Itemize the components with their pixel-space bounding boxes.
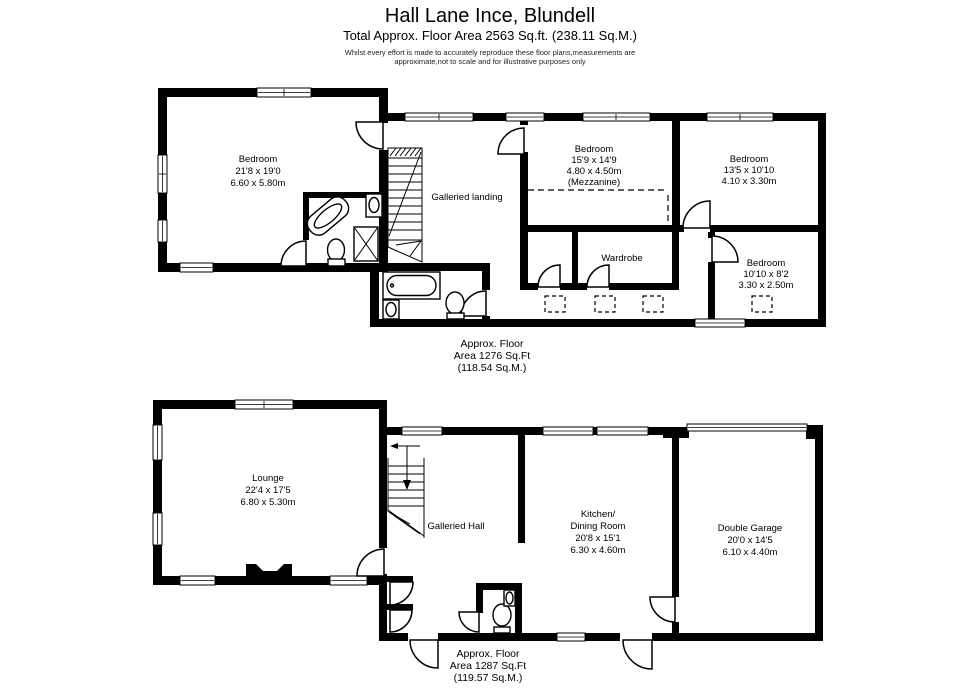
sink bbox=[366, 194, 382, 217]
disclaimer-line-2: approximate,not to scale and for illustr… bbox=[394, 57, 586, 66]
sink bbox=[504, 590, 515, 606]
door-arc bbox=[357, 549, 384, 576]
shower-cubicle bbox=[354, 227, 378, 261]
room-dims-metric: 4.10 x 3.30m bbox=[722, 176, 777, 187]
room-dims-metric: 6.60 x 5.80m bbox=[231, 178, 286, 189]
window bbox=[153, 513, 162, 545]
mezzanine-dashed-line bbox=[528, 190, 668, 224]
window bbox=[257, 88, 311, 97]
room-dims-imperial: 13'5 x 10'10 bbox=[724, 165, 775, 176]
first-floor-plan: Bedroom 21'8 x 19'0 6.60 x 5.80m Galleri… bbox=[158, 88, 826, 374]
skylight bbox=[545, 296, 565, 312]
family-bathroom bbox=[383, 272, 464, 319]
room-label-galleried-hall: Galleried Hall bbox=[427, 521, 484, 532]
room-dims-imperial: 20'0 x 14'5 bbox=[727, 535, 772, 546]
door-arc bbox=[712, 236, 738, 262]
bathtub bbox=[383, 272, 440, 299]
window bbox=[695, 319, 745, 327]
fireplace bbox=[246, 564, 292, 581]
door-arc bbox=[390, 582, 413, 605]
ensuite-bathroom bbox=[303, 193, 382, 266]
toilet bbox=[493, 604, 511, 633]
wc-cloakroom bbox=[493, 590, 515, 633]
ground-floor-plan: Lounge 22'4 x 17'5 6.80 x 5.30m Gallerie… bbox=[153, 400, 823, 684]
window bbox=[180, 263, 213, 272]
window bbox=[330, 576, 367, 585]
door-arc bbox=[459, 612, 479, 632]
ground-floor-walls bbox=[153, 400, 823, 641]
room-label-mezzanine-bedroom: Bedroom bbox=[575, 144, 614, 155]
staircase-ground-floor bbox=[388, 443, 424, 538]
header: Hall Lane Ince, Blundell Total Approx. F… bbox=[343, 5, 637, 66]
disclaimer-line-1: Whilst every effort is made to accuratel… bbox=[345, 48, 635, 57]
page-title: Hall Lane Ince, Blundell bbox=[385, 5, 595, 27]
skylights bbox=[545, 296, 772, 312]
door-arc bbox=[390, 610, 412, 632]
skylight bbox=[752, 296, 772, 312]
window bbox=[405, 113, 473, 121]
room-dims-metric: 3.30 x 2.50m bbox=[739, 280, 794, 291]
window bbox=[180, 576, 215, 585]
first-floor-area-line3: (118.54 Sq.M.) bbox=[458, 362, 527, 374]
skylight bbox=[643, 296, 663, 312]
window bbox=[506, 113, 544, 121]
room-dims-imperial: 21'8 x 19'0 bbox=[235, 166, 280, 177]
back-door-arc bbox=[623, 640, 652, 669]
room-label-dining-room: Dining Room bbox=[571, 521, 626, 532]
toilet bbox=[328, 239, 346, 266]
room-dims-imperial: 22'4 x 17'5 bbox=[245, 485, 290, 496]
room-dims-metric: 6.10 x 4.40m bbox=[723, 547, 778, 558]
door-arc bbox=[587, 265, 609, 287]
ground-floor-area-line1: Approx. Floor bbox=[456, 648, 520, 660]
door-arc bbox=[281, 241, 306, 266]
window bbox=[158, 155, 167, 193]
room-dims-metric: 4.80 x 4.50m bbox=[567, 166, 622, 177]
window bbox=[557, 633, 585, 641]
door-arc bbox=[498, 128, 524, 154]
toilet bbox=[446, 292, 464, 319]
room-label-bedroom-four: Bedroom bbox=[747, 258, 786, 269]
room-label-bedroom-three: Bedroom bbox=[730, 154, 769, 165]
window bbox=[402, 427, 442, 435]
door-arc bbox=[650, 597, 675, 622]
room-label-double-garage: Double Garage bbox=[718, 523, 782, 534]
door-arc bbox=[538, 265, 560, 287]
room-dims-imperial: 15'9 x 14'9 bbox=[571, 155, 616, 166]
bathtub bbox=[303, 193, 352, 239]
door-arc bbox=[356, 122, 383, 149]
room-label-kitchen: Kitchen/ bbox=[581, 509, 616, 520]
first-floor-area-line2: Area 1276 Sq.Ft bbox=[454, 350, 531, 362]
sink bbox=[383, 300, 399, 319]
floorplan-canvas: Hall Lane Ince, Blundell Total Approx. F… bbox=[0, 0, 980, 692]
room-dims-imperial: 10'10 x 8'2 bbox=[743, 269, 788, 280]
page-subtitle: Total Approx. Floor Area 2563 Sq.ft. (23… bbox=[343, 28, 637, 43]
room-label-wardrobe: Wardrobe bbox=[601, 253, 642, 264]
window bbox=[707, 113, 773, 121]
room-label-master-bedroom: Bedroom bbox=[239, 154, 278, 165]
window bbox=[153, 425, 162, 460]
first-floor-windows bbox=[158, 88, 773, 327]
room-label-galleried-landing: Galleried landing bbox=[431, 192, 502, 203]
window bbox=[158, 220, 167, 242]
room-dims-imperial: 20'8 x 15'1 bbox=[575, 533, 620, 544]
first-floor-labels: Bedroom 21'8 x 19'0 6.60 x 5.80m Galleri… bbox=[231, 144, 794, 374]
room-note-mezzanine: (Mezzanine) bbox=[568, 177, 620, 188]
door-arc bbox=[461, 291, 486, 316]
door-arc bbox=[683, 201, 710, 228]
ground-floor-area-line2: Area 1287 Sq.Ft bbox=[450, 660, 527, 672]
ground-floor-area-line3: (119.57 Sq.M.) bbox=[454, 672, 523, 684]
first-floor-walls bbox=[158, 88, 826, 327]
room-dims-metric: 6.80 x 5.30m bbox=[241, 497, 296, 508]
skylight bbox=[595, 296, 615, 312]
front-door-arc bbox=[410, 640, 438, 668]
window bbox=[597, 427, 648, 435]
window bbox=[543, 427, 593, 435]
first-floor-area-line1: Approx. Floor bbox=[460, 338, 524, 350]
window bbox=[583, 113, 650, 121]
floorplan-page: Hall Lane Ince, Blundell Total Approx. F… bbox=[0, 0, 980, 692]
staircase-first-floor bbox=[388, 148, 422, 262]
window bbox=[235, 400, 293, 409]
room-dims-metric: 6.30 x 4.60m bbox=[571, 545, 626, 556]
room-label-lounge: Lounge bbox=[252, 473, 284, 484]
garage-door bbox=[687, 424, 807, 431]
